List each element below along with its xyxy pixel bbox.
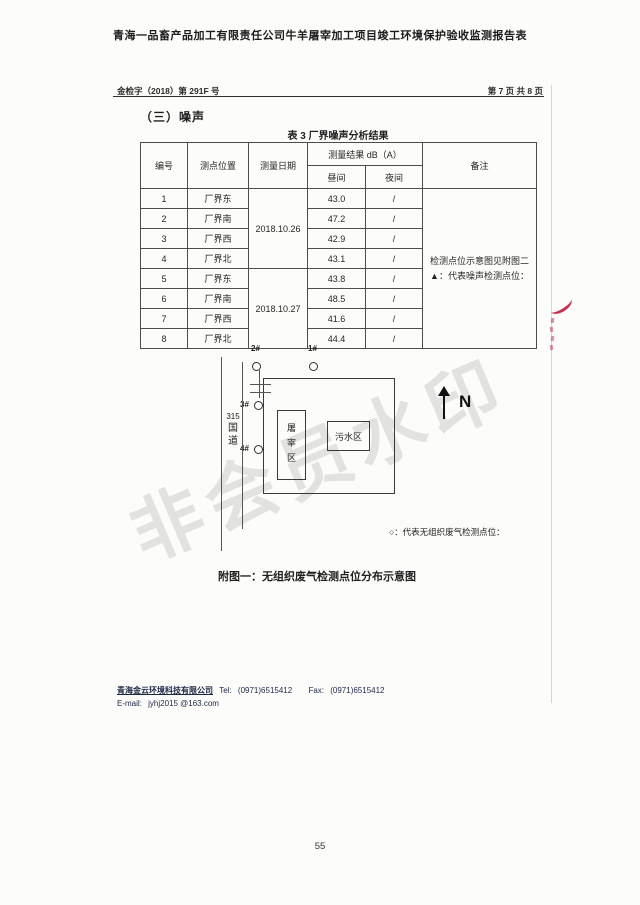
cell-night: / (366, 209, 423, 229)
monitor-point-circle-icon (309, 362, 318, 371)
cell-no: 3 (141, 229, 188, 249)
col-header-day: 昼间 (308, 166, 366, 189)
point-label-1: 1# (308, 344, 317, 353)
north-arrow-shaft (443, 395, 445, 419)
cell-night: / (366, 309, 423, 329)
footer-line-1: 青海金云环境科技有限公司 Tel: (0971)6515412 Fax: (09… (117, 684, 399, 697)
cell-no: 5 (141, 269, 188, 289)
road-line-east (242, 362, 243, 529)
road-number: 315 (224, 411, 242, 422)
sewage-area-label: 污水区 (335, 430, 362, 443)
fax-label: Fax: (308, 686, 324, 695)
cell-no: 7 (141, 309, 188, 329)
cell-location: 厂界南 (188, 209, 249, 229)
cell-day: 43.1 (308, 249, 366, 269)
cell-day: 48.5 (308, 289, 366, 309)
header-rule (113, 96, 544, 97)
cell-location: 厂界东 (188, 189, 249, 209)
red-seal-fragment (550, 345, 554, 350)
cell-date-group1: 2018.10.26 (249, 189, 308, 269)
cell-night: / (366, 189, 423, 209)
cell-night: / (366, 229, 423, 249)
cell-night: / (366, 269, 423, 289)
cell-day: 43.8 (308, 269, 366, 289)
monitor-point-circle-icon (254, 445, 263, 454)
footer-line-2: E-mail: jyhj2015 @163.com (117, 697, 399, 710)
cell-location: 厂界西 (188, 229, 249, 249)
road-char: 道 (224, 435, 242, 448)
col-header-night: 夜间 (366, 166, 423, 189)
sewage-area: 污水区 (327, 421, 370, 451)
cell-no: 8 (141, 329, 188, 349)
gate-tick (250, 384, 271, 385)
remark-line: ▲：代表噪声检测点位： (423, 269, 536, 284)
col-header-remark: 备注 (423, 143, 537, 189)
company-footer: 青海金云环境科技有限公司 Tel: (0971)6515412 Fax: (09… (117, 684, 399, 710)
cell-no: 6 (141, 289, 188, 309)
figure-caption: 附图一：无组织废气检测点位分布示意图 (218, 568, 416, 584)
slaughter-area-label: 屠宰区 (285, 423, 298, 468)
remark-line: 检测点位示意图见附图二 (423, 254, 536, 269)
gate-tick (250, 392, 271, 393)
gas-point-legend: ○：代表无组织废气检测点位： (389, 526, 505, 538)
point-label-2: 2# (251, 344, 260, 353)
cell-date-group2: 2018.10.27 (249, 269, 308, 349)
road-label: 315 国 道 (224, 411, 242, 448)
road-char: 国 (224, 422, 242, 435)
red-seal-fragment (551, 336, 555, 341)
cell-day: 41.6 (308, 309, 366, 329)
tel-value: (0971)6515412 (238, 686, 292, 695)
page-number: 55 (0, 841, 640, 852)
red-seal-fragment (551, 318, 555, 323)
section-title: （三）噪声 (140, 108, 205, 125)
cell-location: 厂界北 (188, 329, 249, 349)
document-title: 青海一品畜产品加工有限责任公司牛羊屠宰加工项目竣工环境保护验收监测报告表 (0, 27, 640, 43)
cell-day: 43.0 (308, 189, 366, 209)
cell-location: 厂界北 (188, 249, 249, 269)
col-header-date: 测量日期 (249, 143, 308, 189)
cell-night: / (366, 329, 423, 349)
table-row: 1 厂界东 2018.10.26 43.0 / 检测点位示意图见附图二 ▲：代表… (141, 189, 537, 209)
red-seal-fragment (550, 327, 554, 332)
cell-no: 2 (141, 209, 188, 229)
cell-remark: 检测点位示意图见附图二 ▲：代表噪声检测点位： (423, 189, 537, 349)
cell-no: 1 (141, 189, 188, 209)
fax-value: (0971)6515412 (330, 686, 384, 695)
cell-location: 厂界东 (188, 269, 249, 289)
noise-result-table: 编号 测点位置 测量日期 测量结果 dB（A） 备注 昼间 夜间 1 厂界东 2… (140, 142, 537, 349)
cell-night: / (366, 249, 423, 269)
slaughter-area: 屠宰区 (277, 410, 306, 480)
cell-location: 厂界南 (188, 289, 249, 309)
road-line-west (221, 357, 222, 551)
col-header-no: 编号 (141, 143, 188, 189)
col-header-result: 测量结果 dB（A） (308, 143, 423, 166)
company-name: 青海金云环境科技有限公司 (117, 686, 213, 695)
cell-location: 厂界西 (188, 309, 249, 329)
cell-day: 47.2 (308, 209, 366, 229)
col-header-location: 测点位置 (188, 143, 249, 189)
monitor-point-circle-icon (254, 401, 263, 410)
north-label: N (459, 392, 471, 412)
table-header-row: 编号 测点位置 测量日期 测量结果 dB（A） 备注 (141, 143, 537, 166)
cell-day: 42.9 (308, 229, 366, 249)
email-value: jyhj2015 @163.com (148, 699, 219, 708)
paper-fold-line (551, 85, 552, 703)
scanned-report-page: 非会员水印 青海一品畜产品加工有限责任公司牛羊屠宰加工项目竣工环境保护验收监测报… (0, 0, 640, 905)
email-label: E-mail: (117, 699, 142, 708)
cell-no: 4 (141, 249, 188, 269)
tel-label: Tel: (219, 686, 231, 695)
cell-night: / (366, 289, 423, 309)
table-caption: 表 3 厂界噪声分析结果 (140, 127, 536, 142)
